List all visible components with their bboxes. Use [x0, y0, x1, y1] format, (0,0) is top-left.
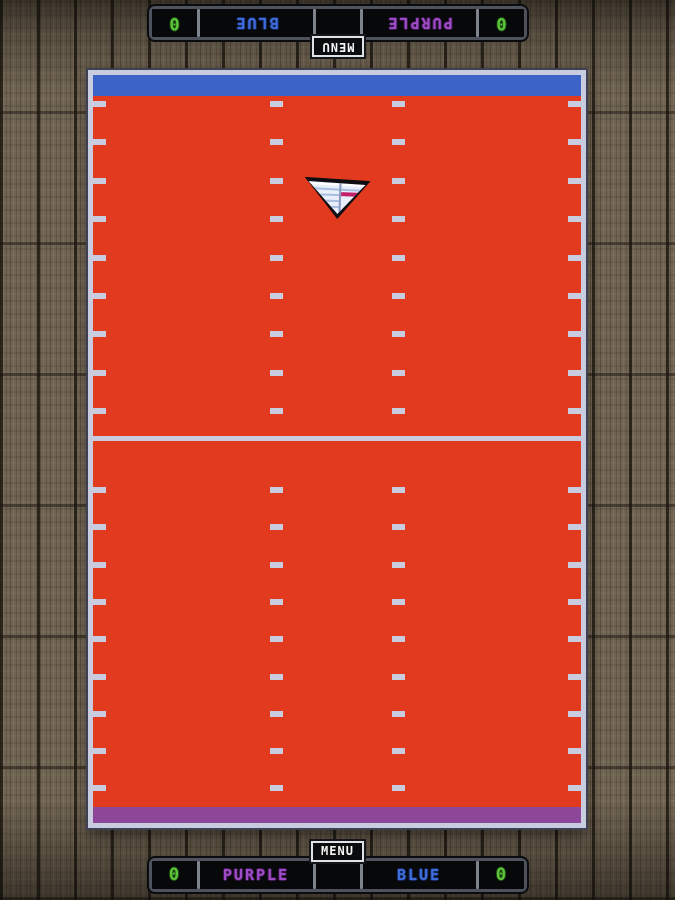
edge-tick — [93, 487, 106, 493]
edge-tick — [568, 293, 581, 299]
team-label-purple: PURPLE — [200, 861, 313, 889]
team-label-blue: BLUE — [200, 9, 313, 37]
edge-tick — [93, 370, 106, 376]
blue-goal-bar — [93, 75, 581, 96]
scoreboard-bottom: 0 PURPLE BLUE 0 — [149, 858, 527, 892]
score-purple: 0 — [479, 9, 524, 37]
score-blue: 0 — [152, 9, 197, 37]
edge-tick — [93, 636, 106, 642]
menu-button-bottom[interactable]: MENU — [311, 841, 364, 862]
score-blue: 0 — [479, 861, 524, 889]
edge-tick — [93, 562, 106, 568]
edge-tick — [568, 331, 581, 337]
lane-dash — [270, 748, 283, 754]
hud-bottom: MENU 0 PURPLE BLUE 0 — [149, 841, 527, 892]
scoreboard-spacer — [316, 861, 360, 889]
team-label-purple: PURPLE — [363, 9, 476, 37]
lane-dash — [392, 487, 405, 493]
lane-dash — [392, 139, 405, 145]
score-purple: 0 — [152, 861, 197, 889]
edge-tick — [93, 101, 106, 107]
edge-tick — [93, 524, 106, 530]
edge-tick — [93, 178, 106, 184]
lane-dash — [392, 636, 405, 642]
lane-dash — [392, 562, 405, 568]
lane-dash — [392, 785, 405, 791]
lane-dash — [270, 524, 283, 530]
lane-dash — [392, 370, 405, 376]
lane-dash — [270, 408, 283, 414]
edge-tick — [568, 255, 581, 261]
edge-tick — [93, 255, 106, 261]
lane-dash — [392, 711, 405, 717]
edge-tick — [93, 674, 106, 680]
lane-dash — [270, 293, 283, 299]
edge-tick — [568, 636, 581, 642]
edge-tick — [93, 785, 106, 791]
edge-tick — [568, 562, 581, 568]
lane-dash — [270, 255, 283, 261]
lane-dash — [392, 524, 405, 530]
hud-top: MENU 0 PURPLE BLUE 0 — [149, 6, 527, 57]
edge-tick — [93, 139, 106, 145]
edge-tick — [568, 524, 581, 530]
menu-button-top[interactable]: MENU — [311, 36, 364, 57]
lane-dash — [392, 331, 405, 337]
lane-dash — [270, 599, 283, 605]
edge-tick — [93, 748, 106, 754]
lane-dash — [270, 636, 283, 642]
edge-tick — [568, 178, 581, 184]
lane-dash — [270, 331, 283, 337]
lane-dash — [270, 711, 283, 717]
edge-tick — [93, 331, 106, 337]
edge-tick — [568, 408, 581, 414]
lane-dash — [392, 674, 405, 680]
paper-plane-icon — [302, 172, 372, 222]
edge-tick — [568, 748, 581, 754]
lane-dash — [392, 408, 405, 414]
lane-dash — [392, 101, 405, 107]
edge-tick — [568, 139, 581, 145]
edge-tick — [93, 408, 106, 414]
lane-dash — [270, 674, 283, 680]
lane-dash — [270, 139, 283, 145]
edge-tick — [93, 599, 106, 605]
lane-dash — [270, 370, 283, 376]
purple-goal-bar — [93, 807, 581, 823]
edge-tick — [93, 216, 106, 222]
lane-dash — [392, 748, 405, 754]
lane-dash — [270, 178, 283, 184]
edge-tick — [568, 216, 581, 222]
lane-dash — [392, 293, 405, 299]
lane-dash — [270, 216, 283, 222]
scoreboard-top: 0 PURPLE BLUE 0 — [149, 6, 527, 40]
scoreboard-spacer — [316, 9, 360, 37]
edge-tick — [568, 711, 581, 717]
game-screen: MENU 0 PURPLE BLUE 0 MENU 0 PURPLE BLUE … — [0, 0, 675, 900]
lane-dash — [270, 785, 283, 791]
lane-dash — [392, 178, 405, 184]
edge-tick — [93, 711, 106, 717]
lane-dash — [392, 255, 405, 261]
lane-dash — [270, 101, 283, 107]
lane-dash — [270, 562, 283, 568]
team-label-blue: BLUE — [363, 861, 476, 889]
edge-tick — [568, 101, 581, 107]
lane-dash — [392, 216, 405, 222]
lane-dash — [392, 599, 405, 605]
edge-tick — [568, 599, 581, 605]
edge-tick — [568, 487, 581, 493]
edge-tick — [568, 370, 581, 376]
lane-dash — [270, 487, 283, 493]
center-line — [93, 436, 581, 441]
edge-tick — [93, 293, 106, 299]
edge-tick — [568, 785, 581, 791]
edge-tick — [568, 674, 581, 680]
